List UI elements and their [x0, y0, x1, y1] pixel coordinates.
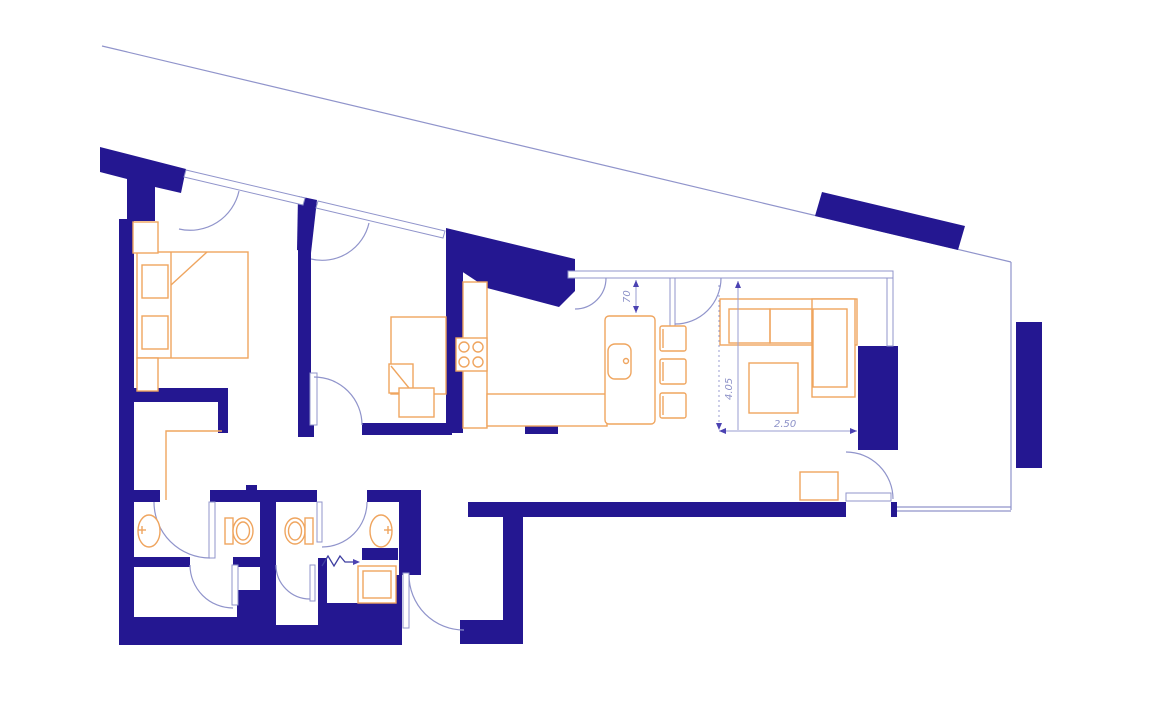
sofa-chaise [812, 299, 855, 397]
dim-250-arrow-left [719, 428, 726, 434]
balcony-door-swing [675, 278, 721, 324]
wall-entry-bottom [460, 620, 523, 644]
bedroom1-window-swing [179, 191, 239, 230]
counter-bottom [487, 394, 607, 426]
dim-405-arrow-top [735, 281, 741, 288]
bedroom-1-furniture [133, 222, 248, 500]
dim-405-label: 4.05 [724, 378, 735, 400]
nightstand [133, 222, 158, 253]
dim-250-arrow-right [850, 428, 857, 434]
bar-stool-2 [660, 359, 686, 384]
storage-left-door-leaf [232, 565, 238, 605]
bar-stool-1 [660, 326, 686, 351]
radiator-arrow [353, 559, 360, 565]
sideboard [800, 472, 838, 500]
wall-left-outer [119, 219, 134, 645]
bathroom-right-door-swing [322, 502, 367, 547]
coffee-table [749, 363, 798, 413]
bedroom2-window-swing [311, 223, 369, 260]
dim-70-arrow-bottom [633, 306, 639, 313]
tv-wall-pier [858, 346, 898, 450]
pillow-top [142, 265, 168, 298]
living-window-band [568, 271, 893, 278]
bedroom-2-furniture [389, 317, 446, 417]
living-window-side [887, 278, 893, 346]
outer-pier-right [1016, 322, 1042, 468]
bathroom-left-door-leaf [209, 502, 215, 558]
terrace-door-leaf [846, 493, 891, 501]
dresser [137, 358, 158, 391]
bedroom1-window [184, 170, 305, 205]
toilet-left-tank [225, 518, 233, 544]
kitchen-furniture [456, 282, 686, 428]
storage-right-door-swing [276, 565, 310, 599]
wall-living-south-endcap [891, 502, 897, 517]
entrance-door-leaf [403, 573, 409, 628]
wall-bath-top-notch [246, 485, 257, 491]
dimension-living-width: 2.50 [719, 419, 857, 434]
floor-plan-drawing: 70 4.05 2.50 [0, 0, 1160, 719]
kitchen-window-swing [575, 278, 606, 309]
island-sink [608, 344, 631, 379]
terrace-door-swing [846, 452, 893, 499]
wall-bath-center-divider [260, 502, 276, 628]
wall-living-south [468, 502, 846, 517]
entrance-door-swing [409, 575, 464, 630]
wall-bath-mid-1 [134, 557, 190, 567]
bedroom2-door-leaf [310, 373, 317, 425]
bedroom2-door-swing [314, 377, 362, 425]
hall-wardrobe [166, 431, 222, 500]
wall-bedroom1-south-stub [218, 402, 228, 433]
dim-250-label: 2.50 [774, 419, 796, 430]
storage-right-door-leaf [310, 565, 315, 601]
toilet-right-tank [305, 518, 313, 544]
wall-bedroom2-south [362, 423, 452, 435]
dimension-kitchen-clearance: 70 [622, 280, 639, 313]
outer-bar-top-right [815, 192, 965, 250]
floor-plan-canvas: 70 4.05 2.50 [0, 0, 1160, 719]
wall-entry-right [503, 517, 523, 622]
wall-bath-mid-3 [362, 548, 398, 560]
stool [399, 388, 434, 417]
dim-70-label: 70 [622, 290, 633, 303]
bathroom-left-door-swing [154, 502, 210, 558]
wall-bath-right [399, 490, 421, 575]
bar-stool-3 [660, 393, 686, 418]
wall-top-left-corner [100, 147, 186, 221]
balcony-door-leaf [670, 278, 675, 326]
wall-bath-top-1 [119, 490, 160, 502]
wall-bath-top-2 [210, 490, 317, 502]
dim-405-arrow-bottom [716, 423, 722, 430]
storage-left-door-swing [190, 565, 233, 608]
bathroom-right-door-leaf [317, 502, 322, 542]
wall-bedroom-divider [298, 249, 311, 427]
pillow-bottom [142, 316, 168, 349]
wall-kitchen-south-stub [525, 426, 558, 434]
dim-70-arrow-top [633, 280, 639, 287]
living-room-furniture [720, 299, 857, 500]
washbasin-right [370, 515, 392, 547]
bedroom2-window [316, 201, 445, 238]
